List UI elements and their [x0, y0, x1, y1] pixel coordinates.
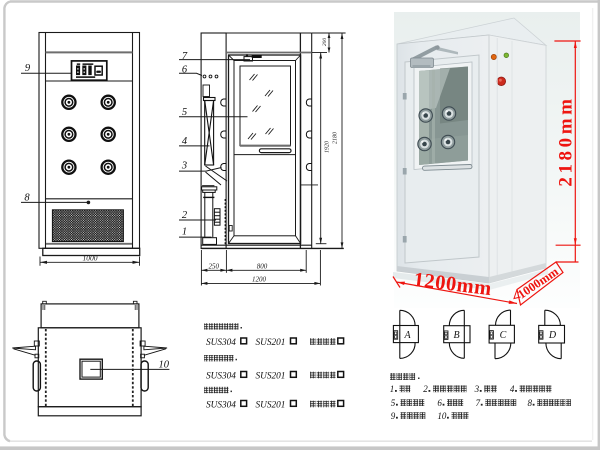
- svg-text:1920: 1920: [325, 141, 331, 153]
- svg-text:SUS201: SUS201: [256, 371, 286, 381]
- svg-text:2180: 2180: [332, 132, 338, 144]
- svg-text:2: 2: [182, 210, 188, 221]
- svg-text:SUS304: SUS304: [206, 371, 236, 381]
- svg-text:SUS201: SUS201: [256, 338, 286, 348]
- svg-text:800: 800: [257, 263, 268, 271]
- svg-text:3: 3: [474, 384, 480, 394]
- svg-text:9: 9: [25, 63, 31, 74]
- svg-text:3: 3: [181, 161, 187, 172]
- svg-text:SUS304: SUS304: [206, 400, 236, 410]
- svg-text:8: 8: [24, 193, 30, 204]
- svg-text:6: 6: [182, 65, 188, 76]
- svg-text:10: 10: [437, 411, 447, 421]
- svg-text:2180mm: 2180mm: [556, 95, 577, 186]
- svg-text:SUS201: SUS201: [256, 400, 286, 410]
- svg-text:10: 10: [159, 360, 170, 371]
- svg-text:2: 2: [423, 384, 428, 394]
- svg-text:A: A: [403, 330, 411, 341]
- svg-text:D: D: [548, 330, 557, 341]
- svg-text:1: 1: [182, 227, 187, 238]
- svg-text:SUS304: SUS304: [206, 338, 236, 348]
- svg-text:4: 4: [182, 136, 188, 147]
- svg-text:1: 1: [390, 384, 395, 394]
- svg-text:7: 7: [182, 51, 188, 62]
- svg-text:5: 5: [391, 398, 396, 408]
- svg-text:6: 6: [437, 398, 442, 408]
- svg-text:C: C: [500, 330, 507, 341]
- svg-text:9: 9: [391, 411, 396, 421]
- svg-text:1200: 1200: [252, 276, 267, 284]
- svg-text:8: 8: [528, 398, 533, 408]
- svg-text:200: 200: [322, 38, 328, 47]
- svg-text:B: B: [453, 330, 459, 341]
- svg-text:250: 250: [208, 263, 219, 271]
- svg-text:7: 7: [476, 398, 481, 408]
- svg-text:4: 4: [510, 384, 515, 394]
- svg-text:1000: 1000: [83, 253, 98, 262]
